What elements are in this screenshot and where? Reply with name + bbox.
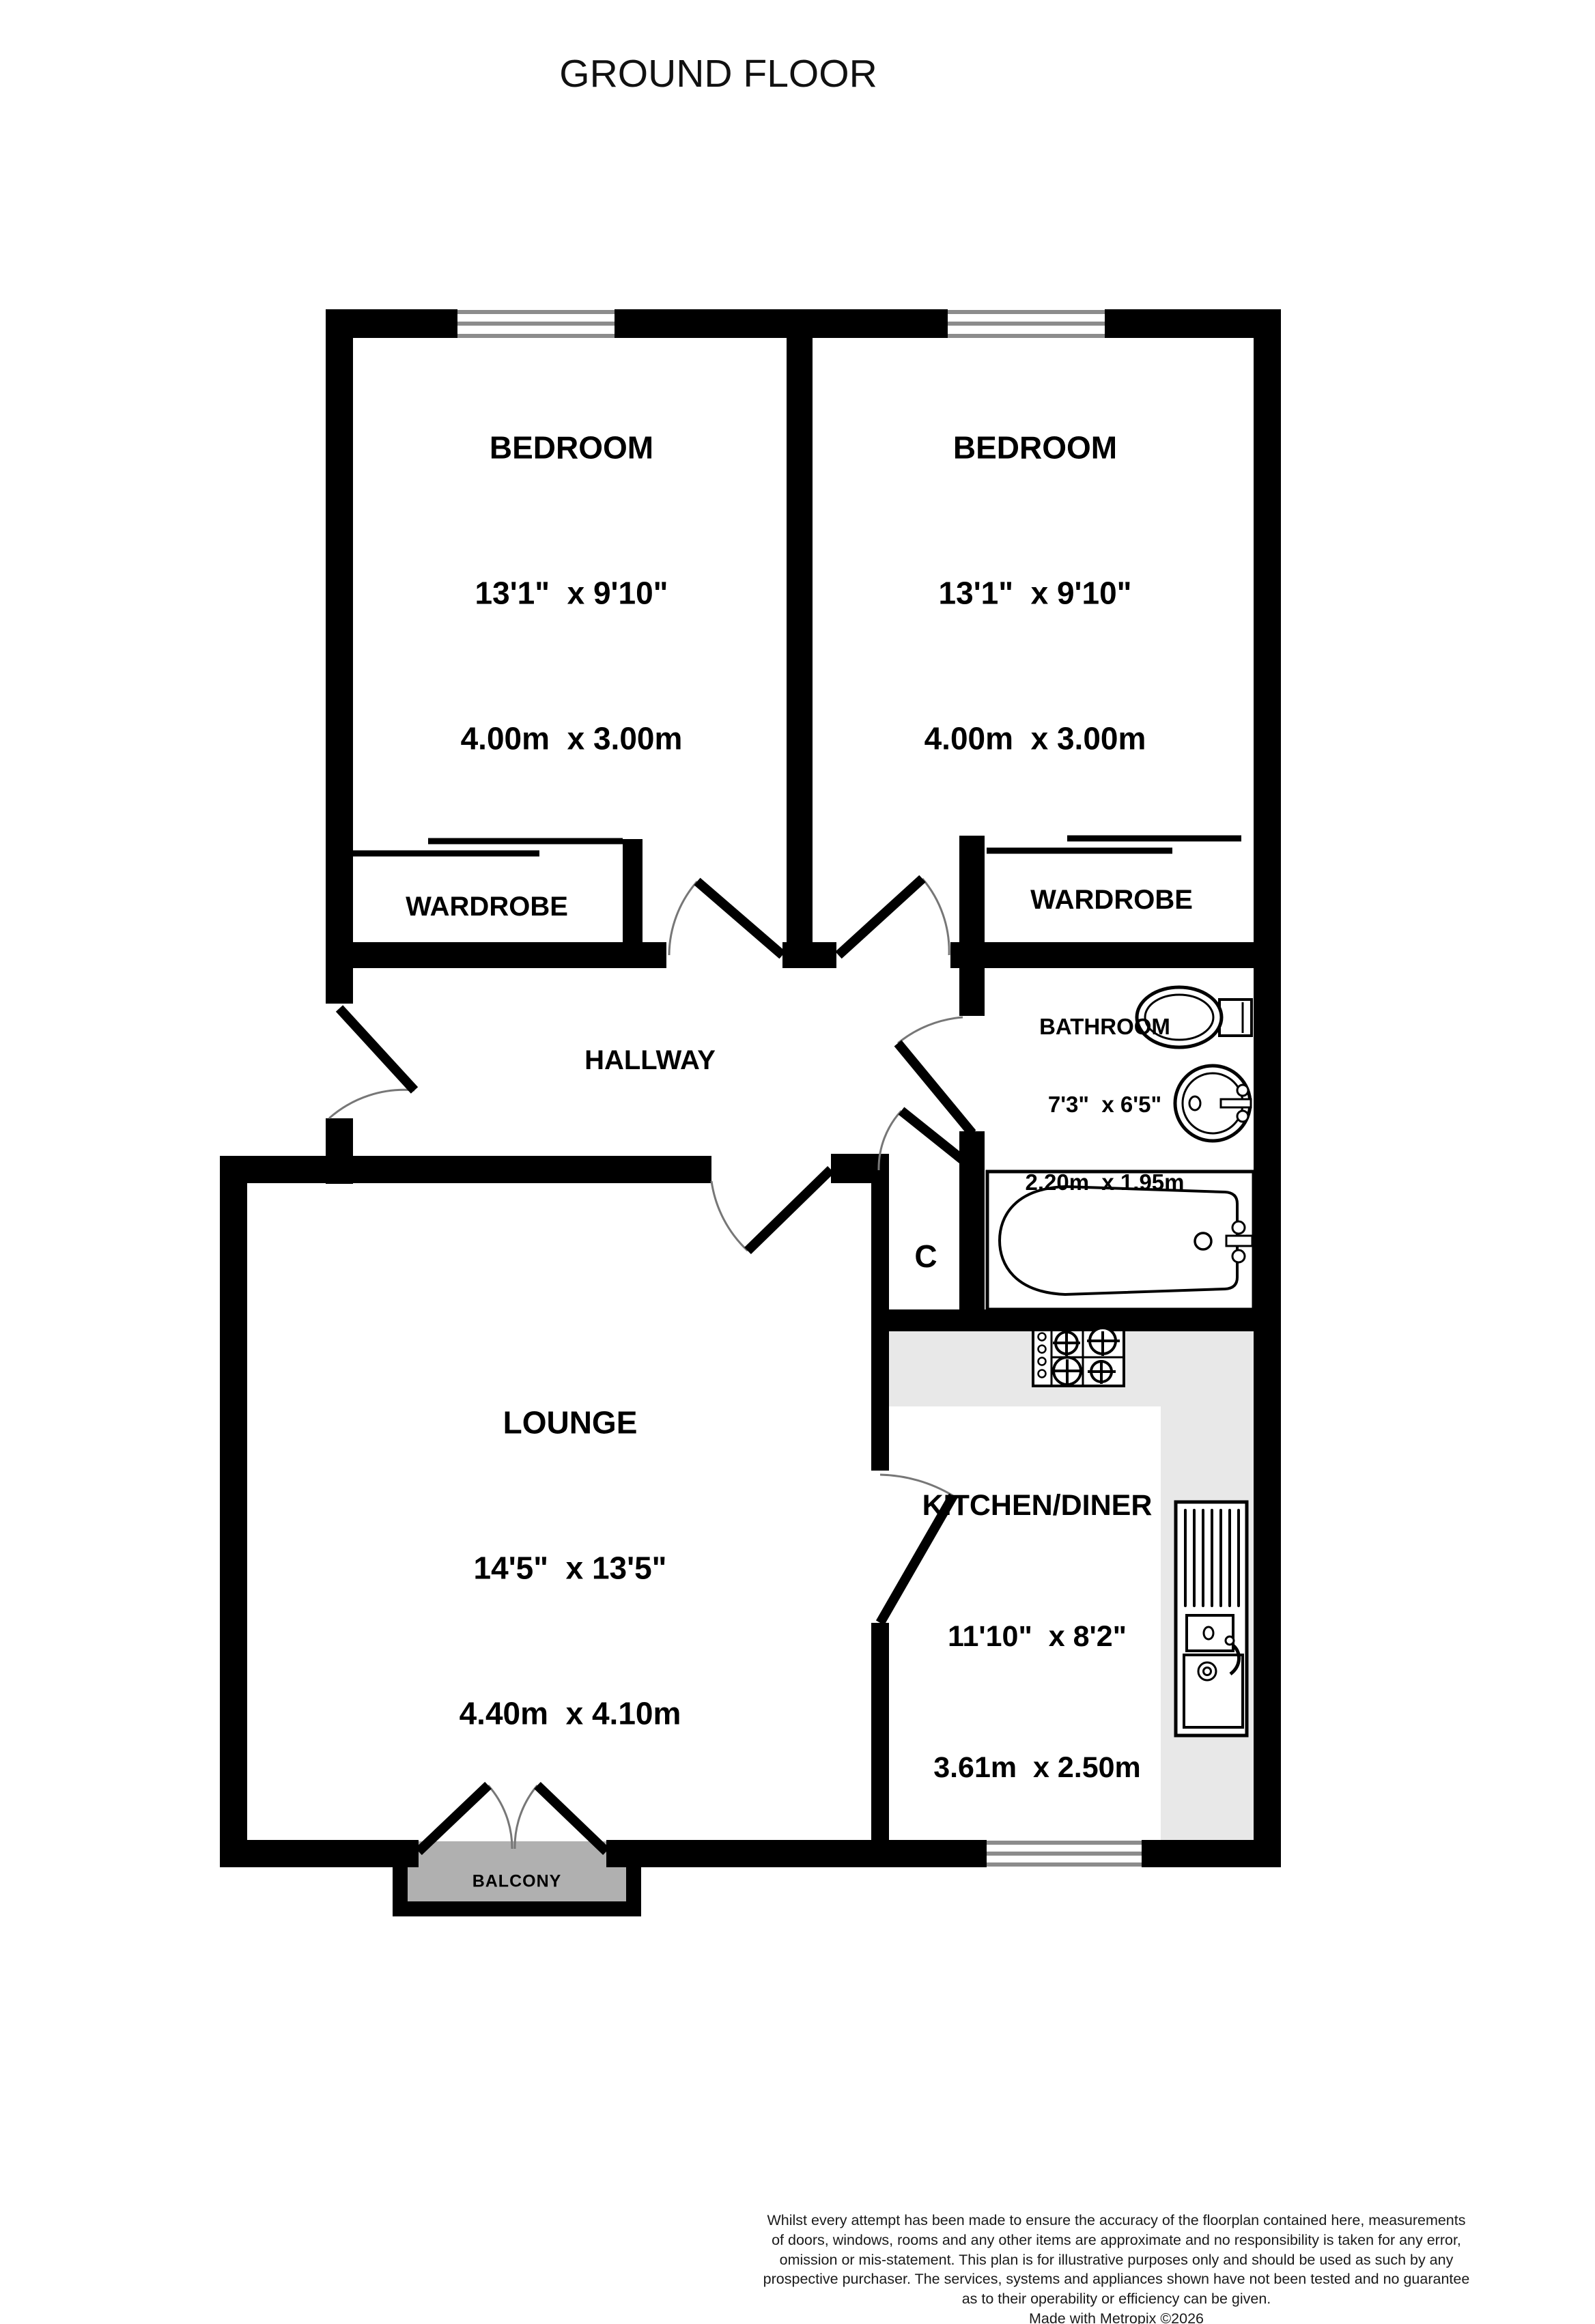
disclaimer-line: Whilst every attempt has been made to en… bbox=[707, 2211, 1526, 2230]
room-label-kitchen: KITCHEN/DINER 11'10" x 8'2" 3.61m x 2.50… bbox=[922, 1396, 1153, 1877]
room-dim-imperial: 13'1" x 9'10" bbox=[924, 569, 1146, 618]
wall bbox=[871, 1309, 1281, 1331]
door-swing-arc bbox=[329, 1090, 414, 1118]
disclaimer-line: prospective purchaser. The services, sys… bbox=[707, 2269, 1526, 2289]
bathroom-sink bbox=[1175, 1066, 1251, 1141]
wall bbox=[220, 1156, 711, 1183]
disclaimer: Whilst every attempt has been made to en… bbox=[707, 2211, 1526, 2324]
room-label-bathroom: BATHROOM 7'3" x 6'5" 2.20m x 1.95m bbox=[1026, 962, 1185, 1247]
door-swing-arc bbox=[898, 1017, 963, 1043]
door-swing-arc bbox=[711, 1181, 748, 1251]
door bbox=[697, 881, 782, 955]
room-label-wardrobe2: WARDROBE bbox=[1030, 885, 1193, 915]
page-title: GROUND FLOOR bbox=[559, 51, 877, 96]
door-swing-arc bbox=[669, 881, 697, 955]
wall bbox=[1254, 309, 1281, 1867]
room-label-hallway: HALLWAY bbox=[584, 1045, 716, 1075]
hob bbox=[1033, 1328, 1124, 1386]
wall bbox=[220, 1156, 247, 1867]
floor-plan-drawing bbox=[0, 0, 1595, 2324]
room-dim-imperial: 13'1" x 9'10" bbox=[461, 569, 683, 618]
door-swing-arc bbox=[922, 879, 949, 955]
room-name: LOUNGE bbox=[460, 1399, 681, 1447]
room-label-balcony: BALCONY bbox=[472, 1872, 562, 1892]
wall bbox=[782, 942, 836, 968]
room-label-wardrobe1: WARDROBE bbox=[406, 892, 568, 922]
room-label-bedroom2: BEDROOM 13'1" x 9'10" 4.00m x 3.00m bbox=[924, 327, 1146, 860]
room-name: BATHROOM bbox=[1026, 1014, 1185, 1040]
room-dim-metric: 2.20m x 1.95m bbox=[1026, 1170, 1185, 1195]
door bbox=[339, 1008, 414, 1090]
disclaimer-line: of doors, windows, rooms and any other i… bbox=[707, 2230, 1526, 2250]
room-dim-metric: 4.00m x 3.00m bbox=[461, 715, 683, 763]
room-label-cupboard: C bbox=[914, 1238, 937, 1275]
kitchen-sink bbox=[1176, 1502, 1247, 1735]
wall bbox=[959, 968, 985, 1016]
wall bbox=[326, 942, 666, 968]
door bbox=[748, 1170, 831, 1251]
floor-plan-page: GROUND FLOOR BEDROOM 13'1" x 9'10" 4.00m… bbox=[0, 0, 1595, 2324]
wall bbox=[1142, 1840, 1281, 1867]
room-name: KITCHEN/DINER bbox=[922, 1484, 1153, 1527]
room-dim-imperial: 7'3" x 6'5" bbox=[1026, 1092, 1185, 1118]
room-label-lounge: LOUNGE 14'5" x 13'5" 4.40m x 4.10m bbox=[460, 1302, 681, 1835]
room-dim-imperial: 11'10" x 8'2" bbox=[922, 1615, 1153, 1658]
room-dim-metric: 4.40m x 4.10m bbox=[460, 1690, 681, 1738]
disclaimer-line: as to their operability or efficiency ca… bbox=[707, 2289, 1526, 2309]
room-name: BEDROOM bbox=[924, 424, 1146, 472]
wall bbox=[326, 309, 353, 1004]
room-label-bedroom1: BEDROOM 13'1" x 9'10" 4.00m x 3.00m bbox=[461, 327, 683, 860]
wall bbox=[787, 338, 813, 968]
room-name: BEDROOM bbox=[461, 424, 683, 472]
door bbox=[838, 879, 922, 955]
balcony-wall bbox=[393, 1901, 641, 1916]
room-dim-metric: 3.61m x 2.50m bbox=[922, 1746, 1153, 1789]
wall bbox=[871, 1623, 889, 1840]
wall bbox=[220, 1840, 419, 1867]
disclaimer-line: omission or mis-statement. This plan is … bbox=[707, 2250, 1526, 2270]
room-dim-imperial: 14'5" x 13'5" bbox=[460, 1544, 681, 1593]
room-dim-metric: 4.00m x 3.00m bbox=[924, 715, 1146, 763]
credit-line: Made with Metropix ©2026 bbox=[707, 2309, 1526, 2324]
